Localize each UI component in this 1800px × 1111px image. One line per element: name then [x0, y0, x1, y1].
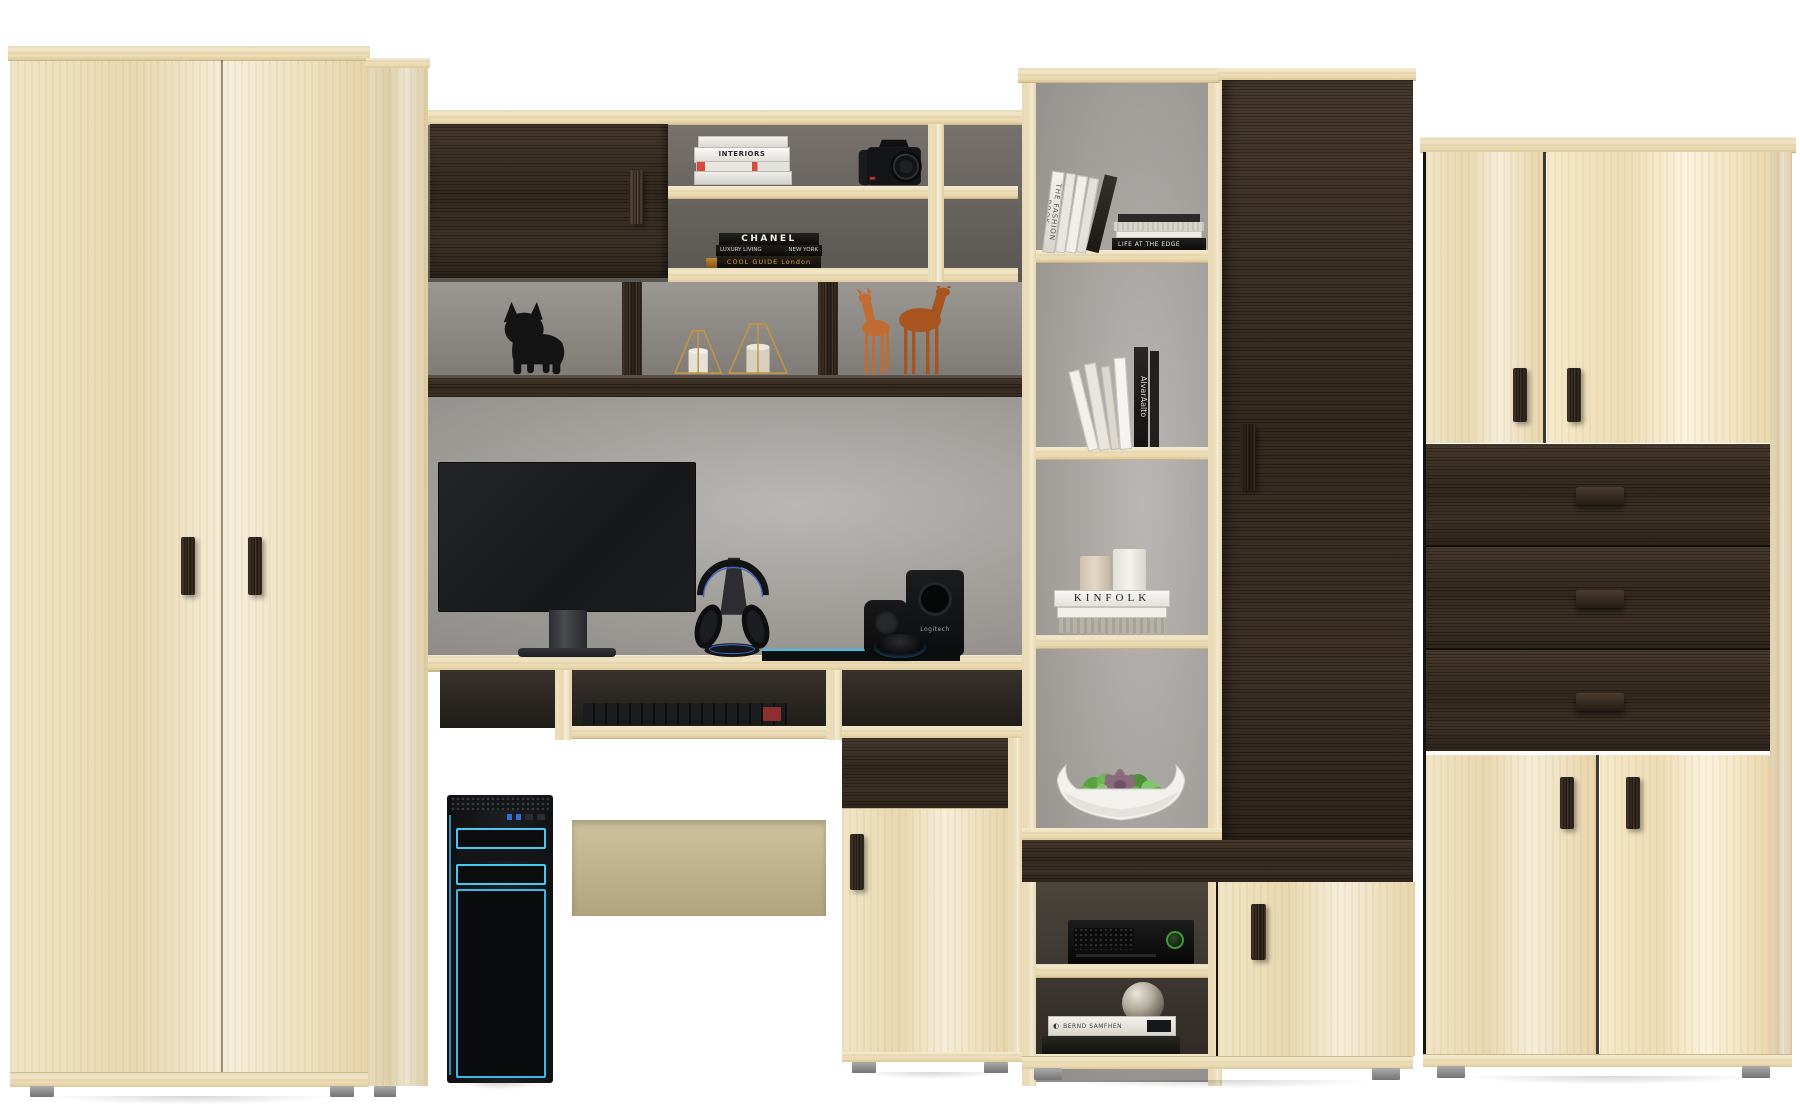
- bookshelf-top-cap: [1018, 68, 1220, 83]
- console-slot: [1076, 954, 1156, 957]
- bottom-cabinet-wenge-drawer: [1022, 840, 1413, 882]
- pedestal-door: [842, 808, 1008, 1059]
- desk-unit-left-column: [368, 66, 428, 1086]
- pedestal-foot-right: [984, 1062, 1008, 1073]
- subwoofer-driver: [918, 582, 952, 616]
- display-divider-post-left: [622, 282, 642, 376]
- bottom-cabinet-left-frame: [1022, 882, 1036, 1068]
- usb-port: [516, 814, 521, 820]
- console-vent: [1074, 928, 1134, 950]
- pc-drive-bay-1: [456, 828, 546, 849]
- computer-mouse: [874, 634, 926, 658]
- edge-book-stack: LIFE AT THE EDGE: [1112, 214, 1206, 250]
- under-desk-post-left: [555, 670, 572, 740]
- chanel-book-stack: CHANEL LUXURY LIVING NEW YORK COOL GUIDE…: [716, 233, 822, 268]
- right-unit-lower-handle-right: [1626, 777, 1640, 829]
- speaker-driver: [874, 610, 899, 635]
- monitor-stand-neck: [549, 610, 587, 650]
- right-unit-shadow: [1425, 1076, 1792, 1088]
- book-spine-text: LUXURY LIVING: [720, 245, 762, 256]
- book-spine-edge: LIFE AT THE EDGE: [1112, 238, 1206, 250]
- book-spine-luxury-living: LUXURY LIVING NEW YORK: [716, 245, 822, 256]
- left-wardrobe-foot-left: [30, 1086, 54, 1097]
- drawer-gap-2: [1426, 648, 1770, 650]
- right-unit-drawer-handle-2: [1576, 590, 1624, 608]
- pc-front-io: [455, 814, 545, 820]
- pc-drive-bay-3: [456, 864, 546, 885]
- headphones-on-stand: [686, 542, 778, 660]
- io-slot: [537, 814, 545, 820]
- candle-beige: [1080, 556, 1110, 592]
- right-unit-drawer-handle-3: [1576, 693, 1624, 711]
- candle-white: [1113, 549, 1146, 592]
- book-spine-text: LIFE AT THE EDGE: [1118, 241, 1180, 248]
- book-spine-text: NEW YORK: [788, 245, 818, 256]
- left-wardrobe-handle-left: [181, 537, 195, 595]
- alvar-book-row: AlvarAalto: [1086, 345, 1166, 447]
- book-spine: [1057, 607, 1167, 618]
- bottom-book-white: ◐ BERND SAMFHEN: [1048, 1016, 1176, 1036]
- book-spine-chanel: CHANEL: [719, 233, 819, 245]
- subwoofer-logo: Logitech: [906, 626, 964, 636]
- left-wardrobe-top-cap: [8, 46, 370, 61]
- pc-top-vent-grille: [451, 797, 549, 810]
- monitor-stand-base: [518, 648, 616, 657]
- kinfolk-book-stack: KINFOLK: [1054, 590, 1170, 634]
- book-spine: [1116, 231, 1202, 238]
- gold-candle-lanterns: [666, 322, 794, 376]
- pc-drive-bay-2: [458, 849, 542, 861]
- pc-tower-shadow: [447, 1083, 553, 1092]
- usb-port: [507, 814, 512, 820]
- keyboard-red-keys: [763, 707, 781, 721]
- right-unit-upper-handle-right: [1567, 368, 1581, 422]
- pedestal-wenge-drawer: [842, 738, 1008, 808]
- left-wardrobe-door-seam: [221, 60, 223, 1074]
- deer-figurines: [850, 286, 952, 376]
- bookshelf-shelf-3: [1036, 635, 1208, 649]
- wenge-wardrobe-handle: [1240, 424, 1256, 490]
- under-desk-post-right: [826, 670, 842, 740]
- drawer-gap-1: [1426, 545, 1770, 547]
- book-spine: [1114, 222, 1204, 231]
- book-spine: [1118, 214, 1200, 222]
- pedestal-side-strip: [1008, 738, 1022, 1060]
- keyboard: [583, 703, 787, 725]
- left-wardrobe-base: [10, 1072, 368, 1087]
- bottom-cabinet-shadow: [1022, 1080, 1413, 1092]
- bottom-cabinet-door-handle: [1251, 904, 1266, 960]
- io-slot: [525, 814, 533, 820]
- right-unit-upper-handle-left: [1513, 368, 1527, 422]
- right-unit-foot-right: [1742, 1066, 1770, 1078]
- right-unit-lower-door-seam: [1596, 755, 1599, 1054]
- hutch-shelf-lower: [668, 268, 1018, 283]
- bottom-cabinet-door: [1216, 882, 1415, 1056]
- game-console: [1068, 920, 1194, 964]
- right-unit-foot-left: [1437, 1066, 1465, 1078]
- right-unit-side-panel: [1770, 152, 1792, 1066]
- left-wardrobe-floor-shadow: [10, 1096, 370, 1108]
- pedestal-foot-left: [852, 1062, 876, 1073]
- bottom-cabinet-shelf: [1036, 964, 1208, 978]
- pedestal-shadow: [842, 1072, 1022, 1082]
- console-power-ring: [1166, 931, 1184, 949]
- bottom-cabinet-base: [1022, 1056, 1413, 1069]
- display-divider-post-right: [818, 282, 838, 376]
- dslr-camera: [853, 136, 933, 188]
- keyboard-tray-shelf: [572, 726, 826, 739]
- book-spine-alvar: AlvarAalto: [1134, 347, 1148, 447]
- book-spine-kinfolk: KINFOLK: [1054, 590, 1170, 607]
- book-spine-block: [1147, 1020, 1171, 1032]
- right-unit-lower-handle-left: [1560, 777, 1574, 829]
- book-spine-cool-guide: COOL GUIDE London: [717, 256, 821, 268]
- bulldog-figurine: [492, 299, 570, 377]
- book-spine: [1150, 351, 1159, 447]
- bottom-cabinet-foot-right: [1372, 1068, 1400, 1080]
- bottom-book-dark: [1042, 1036, 1180, 1054]
- fashion-book-row: THE FASHION BOOK: [1042, 166, 1112, 250]
- upper-wenge-cabinet-handle: [630, 170, 643, 224]
- desk-unit-left-column-cap: [366, 58, 430, 68]
- right-unit-drawer-handle-1: [1576, 487, 1624, 505]
- right-unit-top-cap: [1420, 137, 1796, 153]
- desk-modesty-panel: [572, 820, 826, 916]
- hutch-shelf-upper: [668, 186, 1018, 199]
- book-spine-text: BERND SAMFHEN: [1063, 1023, 1122, 1030]
- succulent-bowl: [1054, 756, 1188, 830]
- right-unit-base: [1423, 1054, 1792, 1067]
- book-spine: [694, 171, 792, 185]
- right-unit-upper-door-seam: [1543, 152, 1546, 443]
- left-wardrobe-foot-right: [330, 1086, 354, 1097]
- pc-tower: [447, 795, 553, 1083]
- furniture-scene: INTERIORS CHANEL LUXURY LIVING NEW YORK …: [0, 0, 1800, 1111]
- hutch-top-cap: [428, 110, 1022, 125]
- bottom-cabinet-foot-left: [1034, 1068, 1062, 1080]
- pc-led-strip: [449, 815, 451, 1075]
- left-wardrobe-handle-right: [248, 537, 262, 595]
- pedestal-base: [842, 1052, 1022, 1062]
- pc-front-panel: [456, 889, 546, 1078]
- pedestal-door-handle: [850, 834, 864, 890]
- book-spine-textured: [1059, 618, 1165, 633]
- interiors-book-stack: INTERIORS: [694, 136, 790, 186]
- monitor-screen: [438, 462, 696, 612]
- desk-unit-column-foot: [374, 1086, 396, 1097]
